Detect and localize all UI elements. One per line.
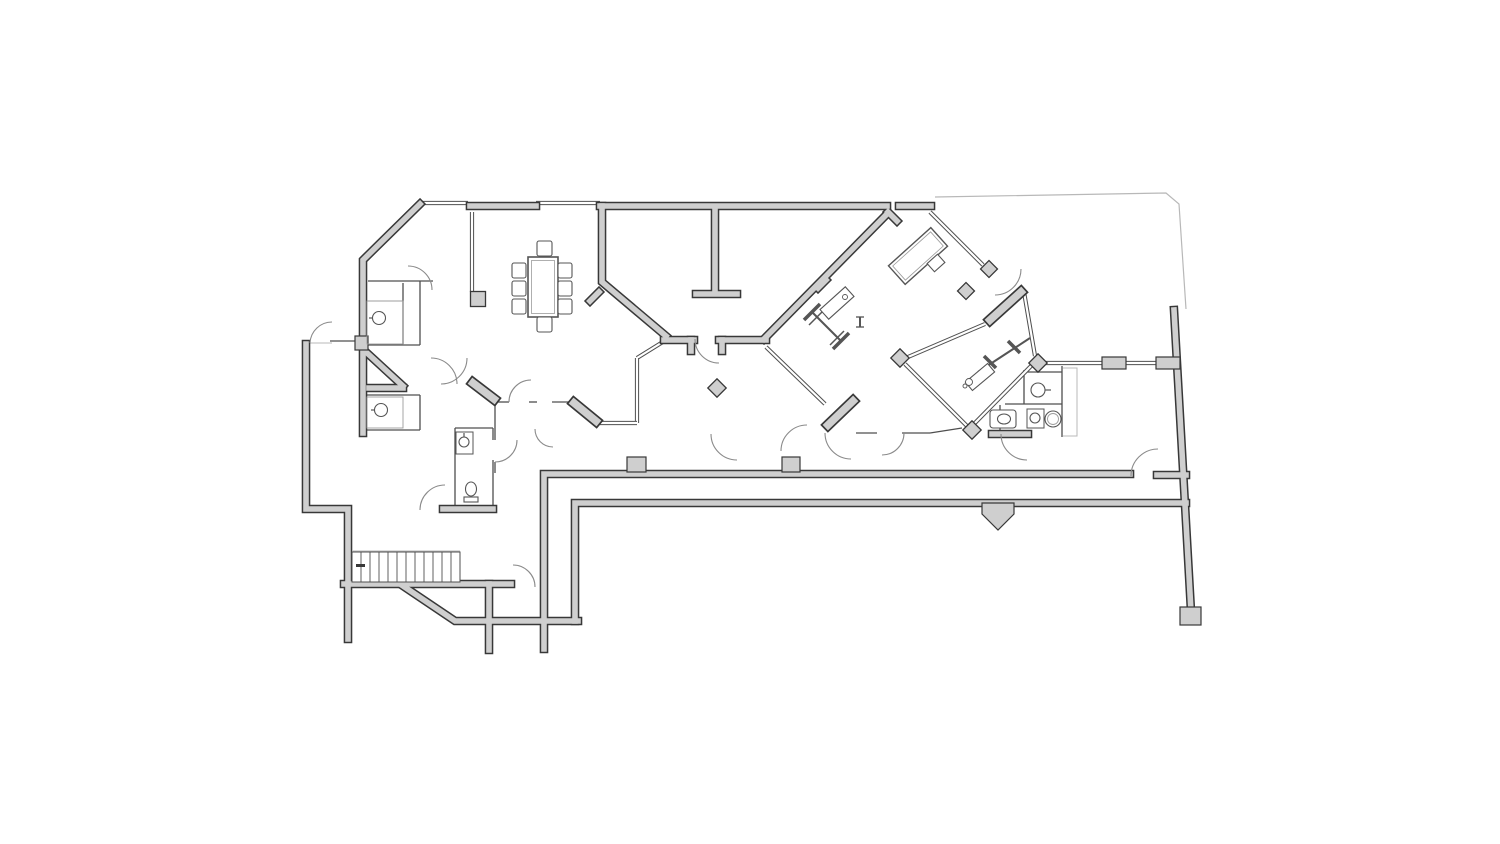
double-wall-core xyxy=(1024,292,1035,356)
plumbing-fixture xyxy=(375,404,388,417)
plumbing-fixture xyxy=(466,482,477,496)
wall-block xyxy=(627,457,646,472)
furniture-item xyxy=(528,257,558,317)
door-swing-arc xyxy=(882,433,904,455)
furniture-item xyxy=(558,281,572,296)
double-wall-core xyxy=(905,364,967,426)
wall-block xyxy=(1102,357,1126,369)
door-swing-arc xyxy=(431,358,457,384)
door-swing-arc xyxy=(711,434,737,460)
plumbing-fixture xyxy=(367,301,403,344)
furniture-item xyxy=(843,295,848,300)
furniture-item xyxy=(512,263,526,278)
furniture-item xyxy=(537,317,552,332)
wall-block xyxy=(1180,607,1201,625)
angled-wall-bar-fill xyxy=(828,401,853,425)
wall-segment-fill xyxy=(602,206,666,336)
column xyxy=(958,283,975,300)
column xyxy=(471,292,486,307)
column xyxy=(1029,354,1047,372)
wall-block xyxy=(782,457,800,472)
plumbing-fixture xyxy=(1030,413,1040,423)
blocks-layer xyxy=(355,292,1201,625)
wall-segment-edge xyxy=(575,503,1186,621)
wall-segment-fill xyxy=(366,352,403,386)
door-swing-arc xyxy=(513,565,535,587)
door-swing-arc xyxy=(825,433,851,459)
plumbing-fixture xyxy=(373,312,386,325)
door-swing-arc xyxy=(509,380,531,402)
plumbing-fixture xyxy=(464,497,478,502)
wall-segment-fill xyxy=(1174,310,1191,611)
furniture-item xyxy=(512,299,526,314)
floor-plan-canvas xyxy=(0,0,1500,844)
column xyxy=(708,379,726,397)
wall-segment-fill xyxy=(575,503,1186,621)
light-line xyxy=(1063,368,1077,436)
plumbing-fixture xyxy=(1048,414,1059,425)
wall-segment-fill xyxy=(306,344,348,639)
door-swing-arc xyxy=(781,425,807,451)
wall-block xyxy=(1156,357,1180,369)
wall-segment-fill xyxy=(764,213,888,339)
thick-walls-layer xyxy=(306,204,1191,650)
plumbing-fixture xyxy=(459,437,469,447)
wall-segment-edge xyxy=(306,344,348,639)
wall-segment-fill xyxy=(888,212,897,221)
furniture-item xyxy=(558,263,572,278)
stairs-start-marker xyxy=(356,564,365,567)
furniture-item xyxy=(963,384,967,388)
double-wall-core xyxy=(766,347,825,404)
plumbing-fixture xyxy=(998,414,1011,424)
wall-block xyxy=(355,336,368,350)
door-swing-arc xyxy=(495,440,517,462)
furniture-item xyxy=(558,299,572,314)
bay-pentagon xyxy=(982,503,1014,530)
floor-plan-svg xyxy=(0,0,1500,844)
thin-wall xyxy=(930,428,962,433)
stairs xyxy=(352,552,460,582)
wall-segment-edge xyxy=(602,206,666,336)
furniture-item xyxy=(537,241,552,256)
door-swing-arc xyxy=(535,429,553,447)
double-wall-core xyxy=(908,324,985,357)
furniture-layer xyxy=(512,228,1030,391)
wall-segment-fill xyxy=(590,292,599,301)
furniture-item xyxy=(820,287,854,319)
furniture-item xyxy=(512,281,526,296)
door-swing-arc xyxy=(310,322,332,343)
angled-wall-bar-fill xyxy=(990,292,1021,320)
furniture-item xyxy=(965,363,994,390)
plumbing-fixture xyxy=(1031,383,1045,397)
